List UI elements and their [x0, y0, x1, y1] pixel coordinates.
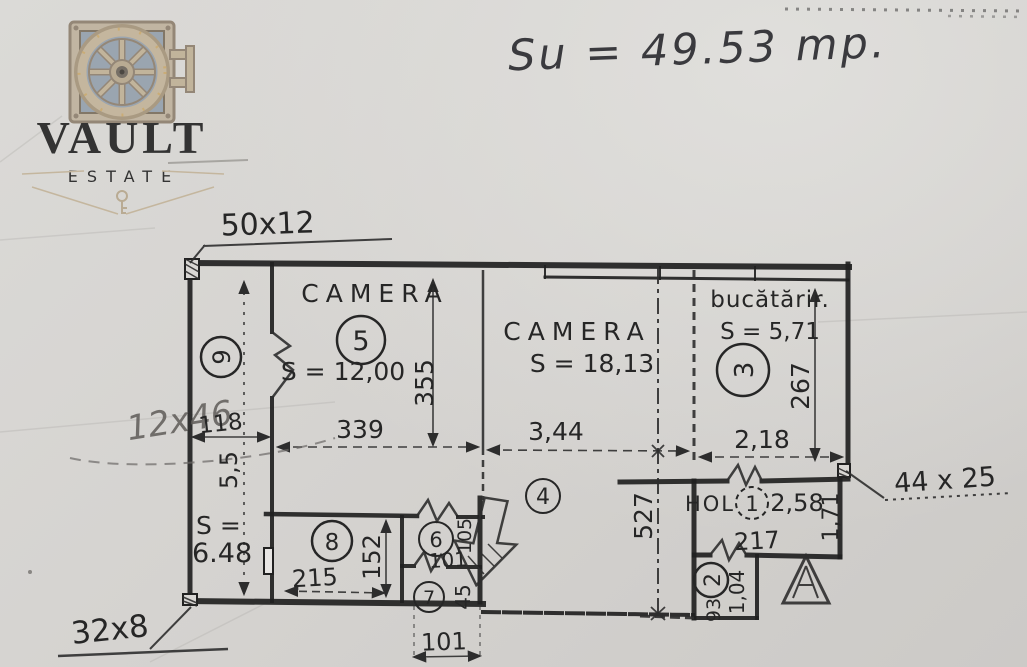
room-name-camera4: CAMERA — [503, 317, 650, 346]
dim-balcony-width: 118 — [197, 409, 243, 439]
dim-hall-a: 2,58 — [770, 489, 823, 517]
dim-room8-width: 215 — [291, 563, 338, 593]
balcony-area-label: S = — [196, 511, 241, 540]
room-area-camera5: S = 12,00 — [281, 357, 405, 386]
dim-camera5-width: 339 — [336, 415, 384, 444]
beam-label-bottom: 32x8 — [69, 608, 150, 652]
dim-room2-a: 1,04 — [725, 570, 749, 615]
dim-hall-b: 1,71 — [819, 493, 844, 542]
room-name-hall: HOL — [685, 492, 735, 516]
room-number-hall: 1 — [745, 492, 758, 516]
room-number-kitchen: 3 — [730, 362, 760, 379]
room-name-camera5: CAMERA — [301, 279, 448, 308]
dim-camera5-height: 355 — [410, 359, 439, 407]
dim-room2-b: 93 — [703, 598, 725, 622]
room-number-room7: 7 — [423, 587, 435, 609]
dim-room8-height: 152 — [358, 534, 386, 580]
wall-camera4-bottom — [483, 612, 693, 615]
window-inner-line — [545, 277, 848, 280]
room-number-camera4: 4 — [536, 485, 550, 510]
dim-camera4-height: 527 — [629, 492, 658, 540]
corner-hatch-right — [838, 464, 850, 478]
balcony-area-value: 6.48 — [192, 538, 252, 569]
wall-bottom-left — [187, 601, 483, 604]
corner-hatch-bottom-left — [183, 594, 197, 606]
dim-room6-height: 105 — [454, 518, 476, 554]
room-number-room2: 2 — [701, 573, 726, 587]
wall-kitchen-bottom — [620, 479, 848, 482]
room-number-balcony: 9 — [208, 349, 236, 364]
room-number-room8: 8 — [325, 530, 340, 556]
balcony-door-leaf — [264, 548, 273, 574]
watermark-subtitle: ESTATE — [68, 167, 180, 186]
dim-kitchen-height: 267 — [786, 362, 815, 410]
dim-bottom-width: 101 — [420, 627, 467, 657]
wall-room8-top — [266, 514, 417, 516]
vault-estate-watermark: VAULT ESTATE — [22, 22, 224, 214]
dim-room7-height: 45 — [451, 584, 475, 609]
beam-label-top: 50x12 — [220, 205, 315, 243]
vault-door-icon — [70, 22, 194, 122]
wall-hall-bottom — [694, 555, 840, 557]
room-number-camera5: 5 — [352, 326, 369, 357]
floor-plan-sketch: VAULT ESTATE Su = 49.53 mp. — [0, 0, 1027, 667]
total-usable-area: Su = 49.53 mp. — [507, 18, 888, 81]
wall-top — [189, 263, 849, 267]
room-area-kitchen: S = 5,71 — [720, 319, 820, 345]
scanned-floor-plan-page: VAULT ESTATE Su = 49.53 mp. — [0, 0, 1027, 667]
watermark-brand: VAULT — [37, 112, 208, 163]
room-area-camera4: S = 18,13 — [530, 349, 654, 378]
room-name-kitchen: bucătărir. — [710, 287, 830, 313]
dim-kitchen-width: 2,18 — [734, 425, 790, 454]
dim-hall-width: 217 — [733, 526, 780, 556]
dim-balcony-length: 5,5 — [215, 451, 243, 489]
dim-camera4-width: 3,44 — [528, 417, 584, 446]
page-edge-dots — [785, 9, 1024, 17]
triangle-symbol — [783, 556, 829, 603]
paper-creases — [0, 116, 1027, 662]
